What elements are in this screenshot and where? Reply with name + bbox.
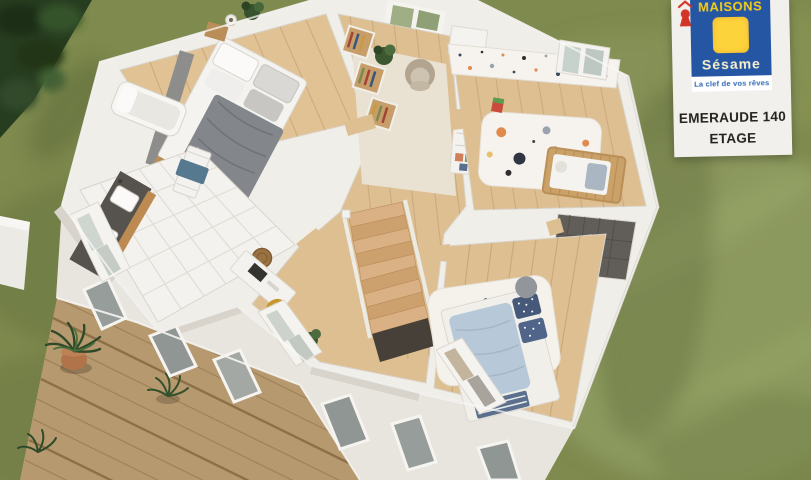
maisons-sesame-logo: MAISONS Sésame La clef de vos rêves [690, 0, 772, 92]
keyhole-icon [712, 17, 749, 54]
plan-title: EMERAUDE 140 ETAGE [673, 107, 792, 151]
logo-wordmark-sesame: Sésame [691, 54, 771, 77]
crib [542, 147, 626, 203]
logo-wordmark-maisons: MAISONS [690, 0, 770, 15]
floor-label: ETAGE [674, 128, 792, 151]
floorplan-screenshot: MAISONS Sésame La clef de vos rêves EMER… [0, 0, 811, 480]
plan-name: EMERAUDE 140 [673, 107, 791, 130]
brand-card: MAISONS Sésame La clef de vos rêves EMER… [671, 0, 792, 157]
nursery [448, 40, 646, 210]
logo-tagline: La clef de vos rêves [692, 75, 772, 92]
